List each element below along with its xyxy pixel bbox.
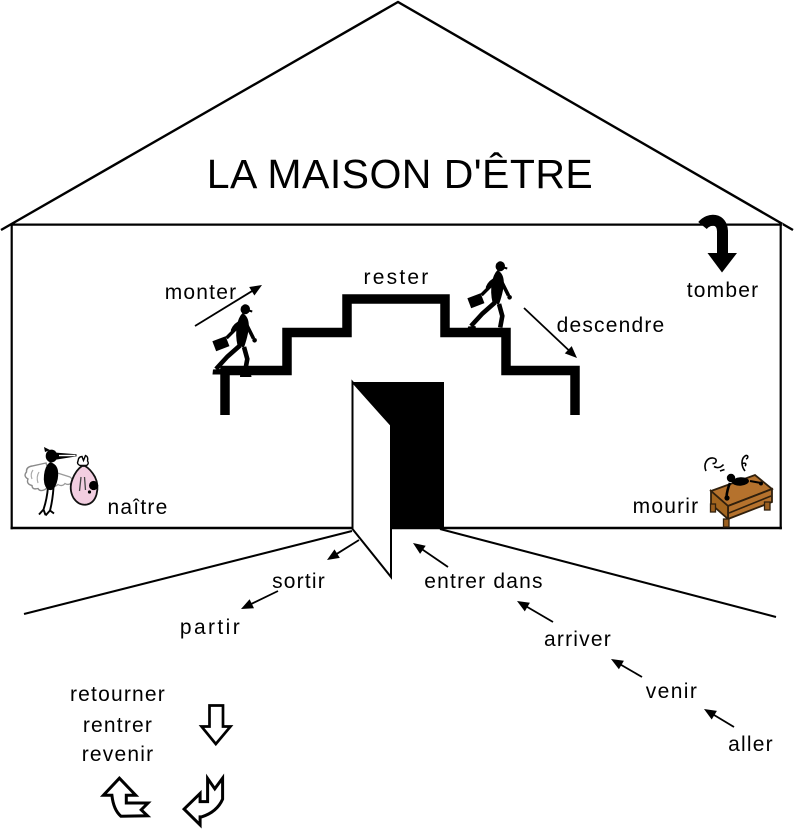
svg-text:retourner: retourner <box>70 683 166 706</box>
svg-text:partir: partir <box>180 616 242 639</box>
svg-text:LA MAISON D'ÊTRE: LA MAISON D'ÊTRE <box>207 151 593 197</box>
svg-text:entrer dans: entrer dans <box>424 570 543 593</box>
svg-text:tomber: tomber <box>687 279 760 302</box>
svg-text:monter: monter <box>165 281 238 304</box>
svg-text:rentrer: rentrer <box>83 714 153 737</box>
svg-text:descendre: descendre <box>557 314 666 337</box>
svg-text:aller: aller <box>728 733 774 756</box>
svg-text:mourir: mourir <box>633 495 700 518</box>
svg-text:naître: naître <box>108 496 169 519</box>
svg-text:arriver: arriver <box>544 628 612 651</box>
svg-text:revenir: revenir <box>82 743 155 766</box>
svg-text:rester: rester <box>364 266 431 289</box>
svg-text:sortir: sortir <box>272 570 326 593</box>
svg-text:venir: venir <box>646 680 699 703</box>
